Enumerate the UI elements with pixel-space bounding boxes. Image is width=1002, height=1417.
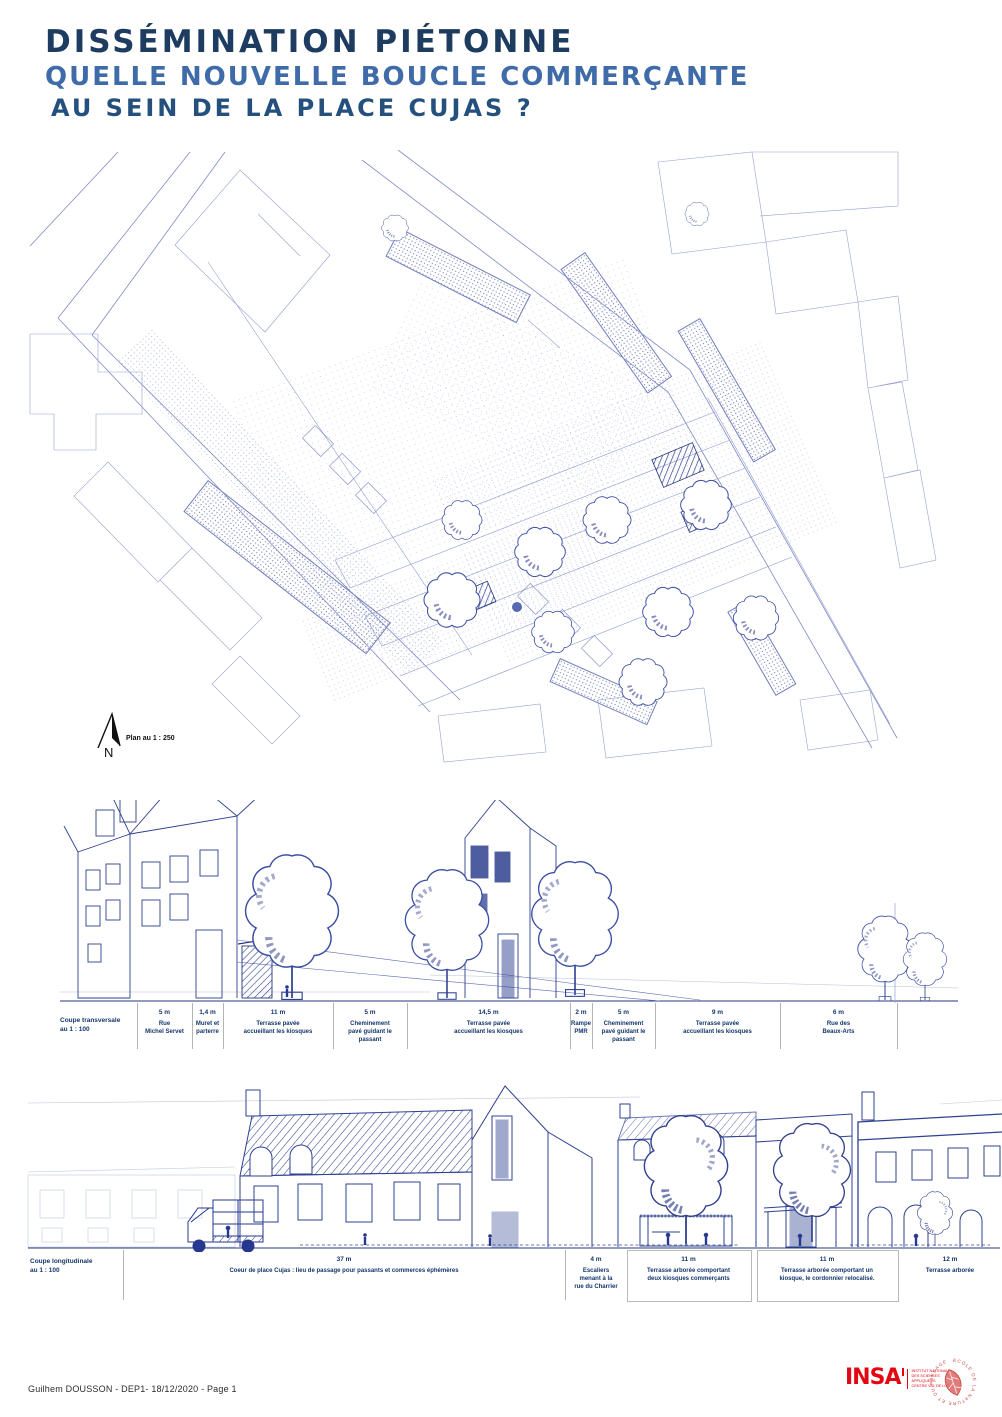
building-a (240, 1090, 472, 1247)
longitudinal-section-drawing (0, 1080, 1002, 1252)
page-title: DISSÉMINATION PIÉTONNE (45, 24, 749, 61)
school-stamp: ÉCOLE DE LA NATURE ET DU PAYSAGE (926, 1355, 980, 1409)
title-block: DISSÉMINATION PIÉTONNE QUELLE NOUVELLE B… (45, 24, 749, 124)
dimension-segment: 1,4 m Muret et parterre (192, 1009, 223, 1037)
long-section-caption: Coupe longitudinale au 1 : 100 (30, 1258, 92, 1276)
long-section-dimensions: Coupe longitudinale au 1 : 100 37 m Coeu… (0, 1250, 1002, 1304)
dimension-segment: 11 m Terrasse arborée comportant un kios… (757, 1256, 897, 1284)
author-credit: Guilhem DOUSSON - DEP1- 18/12/2020 - Pag… (28, 1384, 237, 1394)
poster-page: DISSÉMINATION PIÉTONNE QUELLE NOUVELLE B… (0, 0, 1002, 1417)
page-subtitle-2: AU SEIN DE LA PLACE CUJAS ? (51, 93, 749, 124)
insa-tick-mark (902, 1368, 904, 1376)
delivery-truck (188, 1200, 263, 1252)
terrace-strips (335, 398, 890, 724)
plan-scale-label: Plan au 1 : 250 (126, 735, 175, 742)
dimension-segment: 11 m Terrasse arborée comportant deux ki… (627, 1256, 750, 1284)
dimension-segment: 5 m Rue Michel Servet (137, 1009, 192, 1037)
dimension-segment: 5 m Cheminement pavé guidant le passant (592, 1009, 655, 1044)
dimension-segment: 37 m Coeur de place Cujas : lieu de pass… (123, 1256, 565, 1276)
site-plan-drawing (0, 150, 1002, 768)
insa-acronym: INSA (845, 1367, 900, 1389)
building-b-gable (472, 1086, 592, 1247)
dimension-segment: 9 m Terrasse pavée accueillant les kiosq… (655, 1009, 780, 1037)
street-lines (30, 150, 897, 748)
dimension-segment: 14,5 m Terrasse pavée accueillant les ki… (407, 1009, 570, 1037)
dimension-segment: 2 m Rampe PMR (570, 1009, 592, 1037)
cross-section-drawing (0, 800, 1002, 1005)
dimension-segment: 4 m Escaliers menant à la rue du Charrie… (565, 1256, 627, 1291)
dimension-segment: 5 m Cheminement pavé guidant le passant (333, 1009, 407, 1044)
building-footprints (30, 152, 936, 762)
north-label: N (104, 745, 113, 760)
cross-section-dimensions: Coupe transversale au 1 : 100 5 m Rue Mi… (0, 1003, 1002, 1055)
dimension-segment: 12 m Terrasse arborée (900, 1256, 1000, 1276)
cross-section-caption: Coupe transversale au 1 : 100 (60, 1017, 120, 1035)
dimension-segment: 6 m Rue des Beaux-Arts (780, 1009, 897, 1037)
dimension-segment: 11 m Terrasse pavée accueillant les kios… (223, 1009, 333, 1037)
plan-trees (382, 202, 779, 705)
page-subtitle-1: QUELLE NOUVELLE BOUCLE COMMERÇANTE (45, 61, 749, 94)
